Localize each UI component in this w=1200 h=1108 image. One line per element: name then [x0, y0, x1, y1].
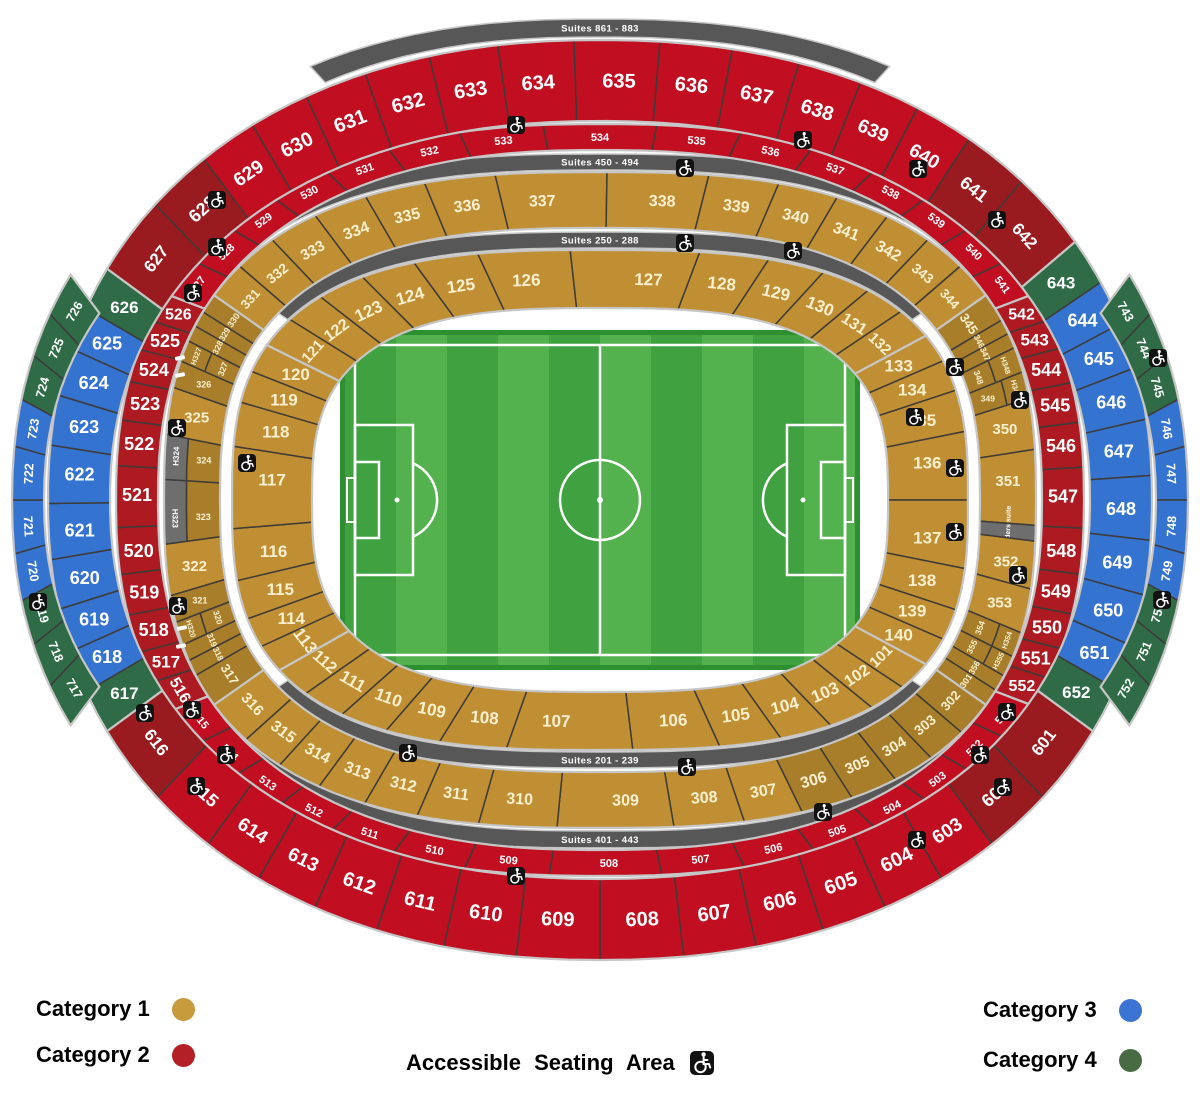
section-522[interactable] — [117, 420, 163, 468]
section-534[interactable] — [543, 124, 657, 151]
section-621[interactable] — [48, 503, 113, 560]
section-338[interactable] — [606, 172, 709, 230]
wheelchair-icon — [399, 744, 417, 762]
wheelchair-icon — [184, 284, 202, 302]
wheelchair-icon — [906, 408, 924, 426]
legend-item-accessible: Accessible Seating Area — [406, 1050, 715, 1076]
legend-label-category-3: Category 3 — [983, 997, 1097, 1023]
wheelchair-icon — [217, 746, 235, 764]
section-519[interactable] — [120, 569, 169, 615]
wheelchair-icon — [238, 454, 256, 472]
wheelchair-icon — [689, 1050, 715, 1076]
legend-item-category-1: Category 1 — [36, 996, 195, 1022]
stadium-map: Suites 861 - 883Suites 450 - 494Suites 2… — [0, 0, 1200, 985]
svg-text:Suites 401 - 443: Suites 401 - 443 — [561, 835, 639, 846]
wheelchair-icon — [208, 191, 226, 209]
section-546[interactable] — [1038, 422, 1084, 469]
wheelchair-icon — [1149, 349, 1167, 367]
svg-text:Suites 450 - 494: Suites 450 - 494 — [561, 157, 639, 168]
category-2-color-dot — [172, 1044, 195, 1067]
legend-item-category-4: Category 4 — [983, 1047, 1142, 1073]
ring-100: 133134135136137138139140 — [855, 336, 968, 665]
section-721[interactable] — [12, 500, 46, 554]
wheelchair-icon — [794, 131, 812, 149]
legend-label-category-1: Category 1 — [36, 996, 150, 1022]
section-h324[interactable] — [164, 434, 188, 481]
wheelchair-icon — [1009, 566, 1027, 584]
section-548[interactable] — [1038, 526, 1083, 574]
svg-text:Suites 201 - 239: Suites 201 - 239 — [561, 755, 639, 766]
legend-label-category-2: Category 2 — [36, 1042, 150, 1068]
category-3-color-dot — [1119, 999, 1142, 1022]
wheelchair-icon — [971, 746, 989, 764]
section-309[interactable] — [557, 771, 674, 828]
ring-100: 113114115116117118119120 — [232, 345, 349, 670]
section-547[interactable] — [1042, 467, 1085, 528]
legend-item-category-3: Category 3 — [983, 997, 1142, 1023]
wheelchair-icon — [507, 867, 525, 885]
wheelchair-icon — [784, 242, 802, 260]
wheelchair-icon — [168, 419, 186, 437]
wheelchair-icon — [1011, 391, 1029, 409]
wheelchair-icon — [1153, 591, 1171, 609]
wheelchair-icon — [908, 831, 926, 849]
section-747[interactable] — [1154, 446, 1188, 500]
svg-text:Suites 250 - 288: Suites 250 - 288 — [561, 235, 639, 246]
category-4-color-dot — [1119, 1049, 1142, 1072]
section-520[interactable] — [116, 526, 161, 575]
wheelchair-icon — [994, 778, 1012, 796]
section-545[interactable] — [1031, 383, 1080, 428]
wheelchair-icon — [998, 703, 1016, 721]
section-h323[interactable] — [164, 479, 187, 544]
section-609[interactable] — [516, 876, 600, 960]
section-337[interactable] — [495, 172, 607, 230]
wheelchair-icon — [946, 523, 964, 541]
svg-text:Suites 861 - 883: Suites 861 - 883 — [561, 23, 639, 34]
wheelchair-icon — [676, 159, 694, 177]
wheelchair-icon — [676, 234, 694, 252]
section-351[interactable] — [979, 449, 1036, 525]
wheelchair-icon — [208, 238, 226, 256]
wheelchair-icon — [169, 597, 187, 615]
section-508[interactable] — [549, 849, 662, 876]
wheelchair-icon — [909, 160, 927, 178]
legend-item-category-2: Category 2 — [36, 1042, 195, 1068]
section-324[interactable] — [187, 439, 222, 483]
wheelchair-icon — [187, 777, 205, 795]
wheelchair-icon — [136, 704, 154, 722]
wheelchair-icon — [946, 358, 964, 376]
wheelchair-icon — [183, 701, 201, 719]
section-648[interactable] — [1089, 475, 1152, 540]
section-634[interactable] — [498, 40, 577, 125]
section-608[interactable] — [600, 876, 684, 960]
section-107[interactable] — [506, 691, 632, 750]
wheelchair-icon — [946, 459, 964, 477]
stadium-seating-chart: Suites 861 - 883Suites 450 - 494Suites 2… — [0, 0, 1200, 1108]
section-635[interactable] — [574, 40, 660, 122]
wheelchair-icon — [988, 211, 1006, 229]
wheelchair-icon — [678, 758, 696, 776]
legend-label-category-4: Category 4 — [983, 1047, 1097, 1073]
category-1-color-dot — [172, 998, 195, 1021]
wheelchair-icon — [507, 116, 525, 134]
wheelchair-icon — [29, 593, 47, 611]
legend-label-accessible: Accessible Seating Area — [406, 1050, 675, 1076]
section-127[interactable] — [570, 250, 700, 310]
section-521[interactable] — [116, 466, 159, 528]
section-323[interactable] — [186, 481, 220, 541]
soccer-field — [340, 330, 860, 670]
wheelchair-icon — [814, 803, 832, 821]
